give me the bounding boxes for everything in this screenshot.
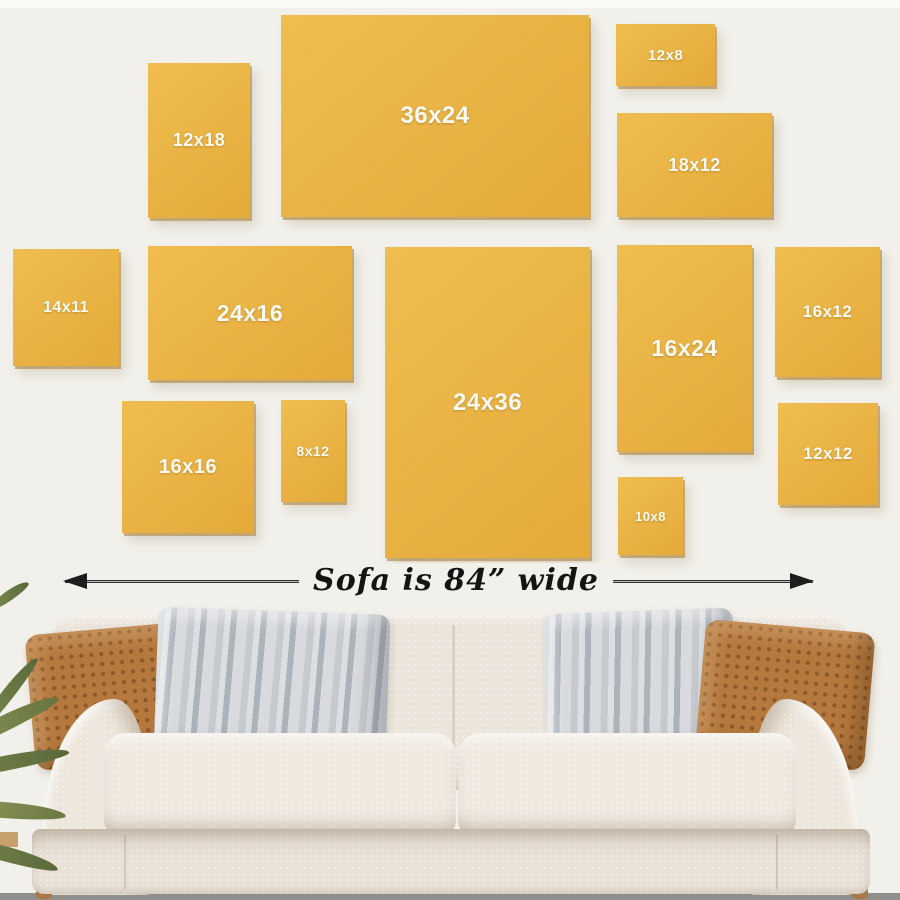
plant-leaf [0, 578, 31, 611]
frame-size-label: 8x12 [296, 443, 329, 459]
wall-top-highlight [0, 0, 900, 8]
frame-size-label: 12x18 [173, 130, 226, 151]
frame-size-label: 24x36 [453, 389, 522, 417]
wall-art-size-guide-scene: 12x18 36x24 12x8 18x12 14x11 24x16 24x36… [0, 0, 900, 900]
frame-size-label: 24x16 [217, 300, 283, 327]
art-frame: 16x16 [122, 401, 254, 533]
art-frame: 24x16 [148, 246, 352, 380]
art-frame: 8x12 [281, 400, 345, 502]
frame-size-label: 16x12 [803, 302, 853, 322]
art-frame: 12x12 [778, 403, 878, 505]
arrow-left-icon [63, 573, 87, 589]
art-frame: 18x12 [617, 113, 772, 217]
art-frame: 14x11 [13, 249, 119, 366]
frame-size-label: 12x12 [803, 444, 853, 464]
sofa-seat-cushion-left [104, 733, 456, 835]
sofa-base-seam-left [124, 835, 126, 889]
arrow-right-icon [790, 573, 814, 589]
sofa-back-seam [452, 625, 455, 757]
art-frame: 24x36 [385, 247, 590, 558]
frame-size-label: 16x24 [651, 335, 717, 362]
frame-size-label: 18x12 [668, 155, 721, 176]
sofa-seat-cushion-right [458, 733, 796, 835]
sofa-base [32, 829, 870, 894]
art-frame: 10x8 [618, 477, 683, 555]
frame-size-label: 36x24 [400, 102, 469, 130]
frame-size-label: 16x16 [159, 456, 217, 479]
art-frame: 36x24 [281, 15, 589, 217]
art-frame: 16x24 [617, 245, 752, 452]
frame-size-label: 10x8 [635, 509, 666, 524]
art-frame: 12x8 [616, 24, 715, 86]
frame-size-label: 14x11 [43, 299, 89, 317]
sofa-width-caption: Sofa is 84” wide [299, 563, 613, 598]
frame-size-label: 12x8 [648, 47, 683, 64]
art-frame: 12x18 [148, 63, 250, 218]
art-frame: 16x12 [775, 247, 880, 377]
sofa-base-seam-right [776, 835, 778, 889]
